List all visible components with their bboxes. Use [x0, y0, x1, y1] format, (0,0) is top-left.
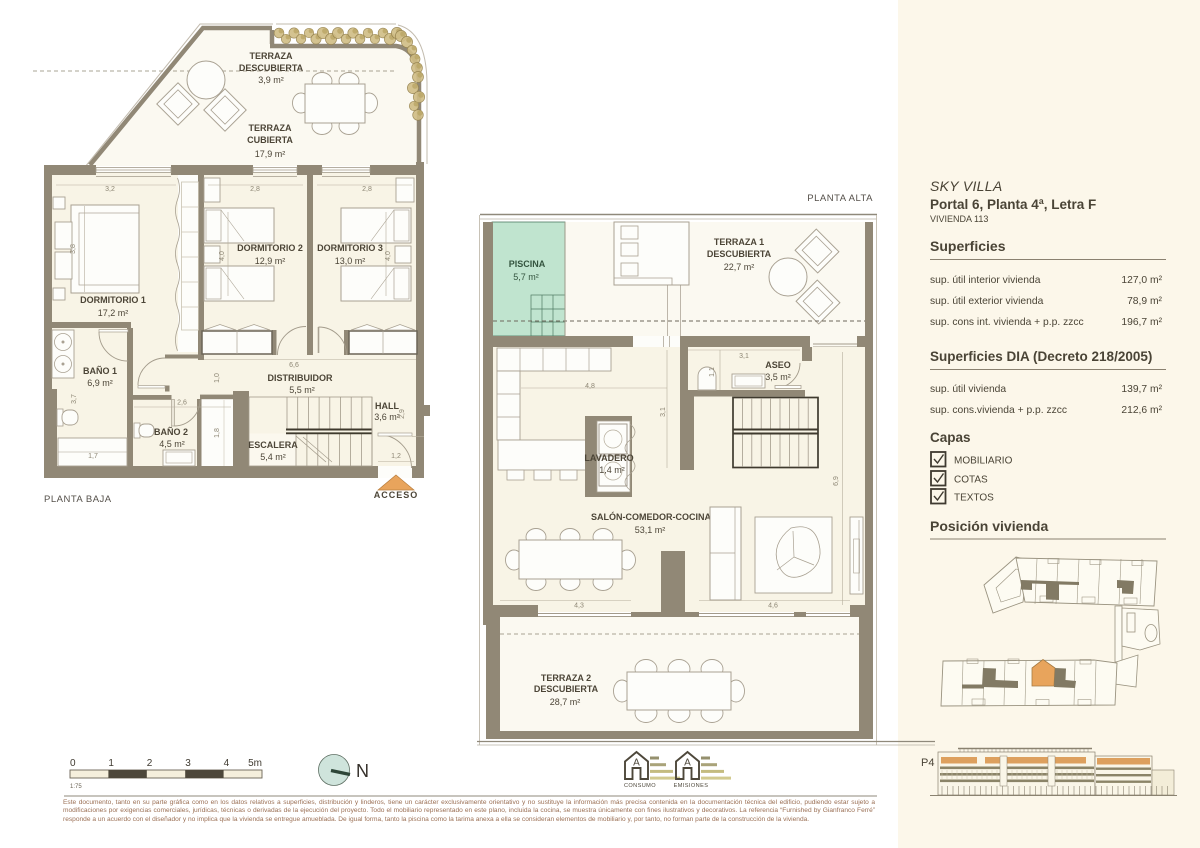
svg-text:4,8: 4,8 — [585, 383, 595, 390]
svg-text:2,8: 2,8 — [362, 186, 372, 193]
svg-text:DISTRIBUIDOR: DISTRIBUIDOR — [268, 373, 334, 383]
svg-text:TEXTOS: TEXTOS — [954, 493, 994, 504]
svg-text:3,9 m²: 3,9 m² — [258, 75, 284, 85]
svg-text:SALÓN-COMEDOR-COCINA: SALÓN-COMEDOR-COCINA — [591, 511, 711, 522]
svg-text:A: A — [633, 758, 640, 769]
svg-text:2,8: 2,8 — [250, 186, 260, 193]
svg-text:LAVADERO: LAVADERO — [584, 453, 633, 463]
svg-text:1,0: 1,0 — [214, 373, 221, 383]
svg-text:4,3: 4,3 — [574, 603, 584, 610]
svg-text:DESCUBIERTA: DESCUBIERTA — [707, 249, 772, 259]
svg-text:3,7: 3,7 — [71, 394, 78, 404]
svg-text:1: 1 — [108, 758, 114, 769]
svg-text:13,0 m²: 13,0 m² — [335, 256, 366, 266]
svg-text:Superficies DIA (Decreto 218/2: Superficies DIA (Decreto 218/2005) — [930, 349, 1152, 364]
svg-text:4,6: 4,6 — [768, 603, 778, 610]
svg-text:3,8: 3,8 — [70, 244, 77, 254]
svg-text:N: N — [356, 761, 369, 781]
svg-text:Posición vivienda: Posición vivienda — [930, 518, 1048, 534]
svg-text:2: 2 — [147, 758, 153, 769]
svg-text:DESCUBIERTA: DESCUBIERTA — [239, 63, 304, 73]
svg-text:ASEO: ASEO — [765, 360, 791, 370]
svg-text:4,0: 4,0 — [385, 251, 392, 261]
svg-text:5,7 m²: 5,7 m² — [513, 272, 539, 282]
svg-text:TERRAZA 2: TERRAZA 2 — [541, 673, 591, 683]
svg-text:5,5 m²: 5,5 m² — [289, 385, 315, 395]
svg-text:sup. útil exterior vivienda: sup. útil exterior vivienda — [930, 296, 1044, 307]
svg-text:ACCESO: ACCESO — [374, 490, 419, 500]
svg-text:5m: 5m — [248, 758, 262, 769]
svg-text:1,7: 1,7 — [88, 453, 98, 460]
svg-text:PISCINA: PISCINA — [509, 259, 546, 269]
svg-text:Superficies: Superficies — [930, 238, 1006, 254]
svg-text:3,1: 3,1 — [739, 353, 749, 360]
svg-text:A: A — [684, 758, 691, 769]
svg-text:6,9 m²: 6,9 m² — [87, 378, 113, 388]
svg-text:1,2: 1,2 — [391, 453, 401, 460]
svg-text:4,5 m²: 4,5 m² — [159, 439, 185, 449]
svg-text:1:75: 1:75 — [70, 784, 82, 790]
svg-text:5,4 m²: 5,4 m² — [260, 452, 286, 462]
svg-text:sup. cons int. vivienda + p.p.: sup. cons int. vivienda + p.p. zzcc — [930, 317, 1084, 328]
svg-text:EMISIONES: EMISIONES — [674, 783, 709, 789]
svg-text:212,6 m²: 212,6 m² — [1121, 405, 1162, 416]
svg-text:TERRAZA: TERRAZA — [249, 123, 292, 133]
svg-text:VIVIENDA 113: VIVIENDA 113 — [930, 214, 988, 224]
svg-text:PLANTA ALTA: PLANTA ALTA — [807, 193, 873, 204]
svg-text:SKY VILLA: SKY VILLA — [930, 178, 1003, 194]
svg-text:17,2 m²: 17,2 m² — [98, 308, 129, 318]
svg-text:P4: P4 — [921, 757, 934, 769]
svg-text:4: 4 — [224, 758, 230, 769]
svg-text:196,7 m²: 196,7 m² — [1121, 317, 1162, 328]
svg-text:12,9 m²: 12,9 m² — [255, 256, 286, 266]
svg-text:Portal 6, Planta 4ª, Letra F: Portal 6, Planta 4ª, Letra F — [930, 197, 1096, 212]
svg-text:PLANTA BAJA: PLANTA BAJA — [44, 494, 112, 505]
svg-text:1,8: 1,8 — [214, 428, 221, 438]
svg-text:17,9 m²: 17,9 m² — [255, 149, 286, 159]
svg-text:1,4 m²: 1,4 m² — [599, 465, 625, 475]
svg-text:22,7 m²: 22,7 m² — [724, 262, 755, 272]
svg-text:127,0 m²: 127,0 m² — [1121, 275, 1162, 286]
svg-text:sup. cons.vivienda + p.p. zzcc: sup. cons.vivienda + p.p. zzcc — [930, 405, 1067, 416]
svg-text:0: 0 — [70, 758, 76, 769]
svg-text:MOBILIARIO: MOBILIARIO — [954, 456, 1013, 467]
svg-text:3,2: 3,2 — [105, 186, 115, 193]
svg-text:sup. útil vivienda: sup. útil vivienda — [930, 384, 1006, 395]
svg-text:CUBIERTA: CUBIERTA — [247, 135, 293, 145]
svg-text:139,7 m²: 139,7 m² — [1121, 384, 1162, 395]
svg-text:DORMITORIO 3: DORMITORIO 3 — [317, 243, 383, 253]
svg-text:78,9 m²: 78,9 m² — [1127, 296, 1162, 307]
svg-text:BAÑO 1: BAÑO 1 — [83, 366, 117, 376]
svg-text:DORMITORIO 1: DORMITORIO 1 — [80, 295, 146, 305]
svg-text:CONSUMO: CONSUMO — [624, 783, 656, 789]
svg-text:28,7 m²: 28,7 m² — [550, 697, 581, 707]
svg-text:53,1 m²: 53,1 m² — [635, 525, 666, 535]
svg-text:DORMITORIO 2: DORMITORIO 2 — [237, 243, 303, 253]
svg-text:HALL: HALL — [375, 401, 399, 411]
svg-text:ESCALERA: ESCALERA — [248, 440, 298, 450]
svg-text:BAÑO 2: BAÑO 2 — [154, 427, 188, 437]
svg-text:6,9: 6,9 — [833, 476, 840, 486]
svg-text:4,0: 4,0 — [219, 251, 226, 261]
svg-text:3,6 m²: 3,6 m² — [374, 412, 400, 422]
svg-text:TERRAZA: TERRAZA — [250, 51, 293, 61]
svg-text:TERRAZA 1: TERRAZA 1 — [714, 237, 764, 247]
svg-text:6,6: 6,6 — [289, 362, 299, 369]
svg-text:3: 3 — [185, 758, 191, 769]
svg-text:2,6: 2,6 — [177, 400, 187, 407]
svg-text:COTAS: COTAS — [954, 475, 988, 486]
svg-text:DESCUBIERTA: DESCUBIERTA — [534, 684, 599, 694]
svg-text:2,9: 2,9 — [399, 409, 406, 419]
svg-text:1,1: 1,1 — [709, 367, 716, 377]
svg-text:3,1: 3,1 — [660, 407, 667, 417]
svg-text:sup. útil interior vivienda: sup. útil interior vivienda — [930, 275, 1041, 286]
svg-text:Capas: Capas — [930, 430, 971, 445]
svg-text:3,5 m²: 3,5 m² — [765, 372, 791, 382]
